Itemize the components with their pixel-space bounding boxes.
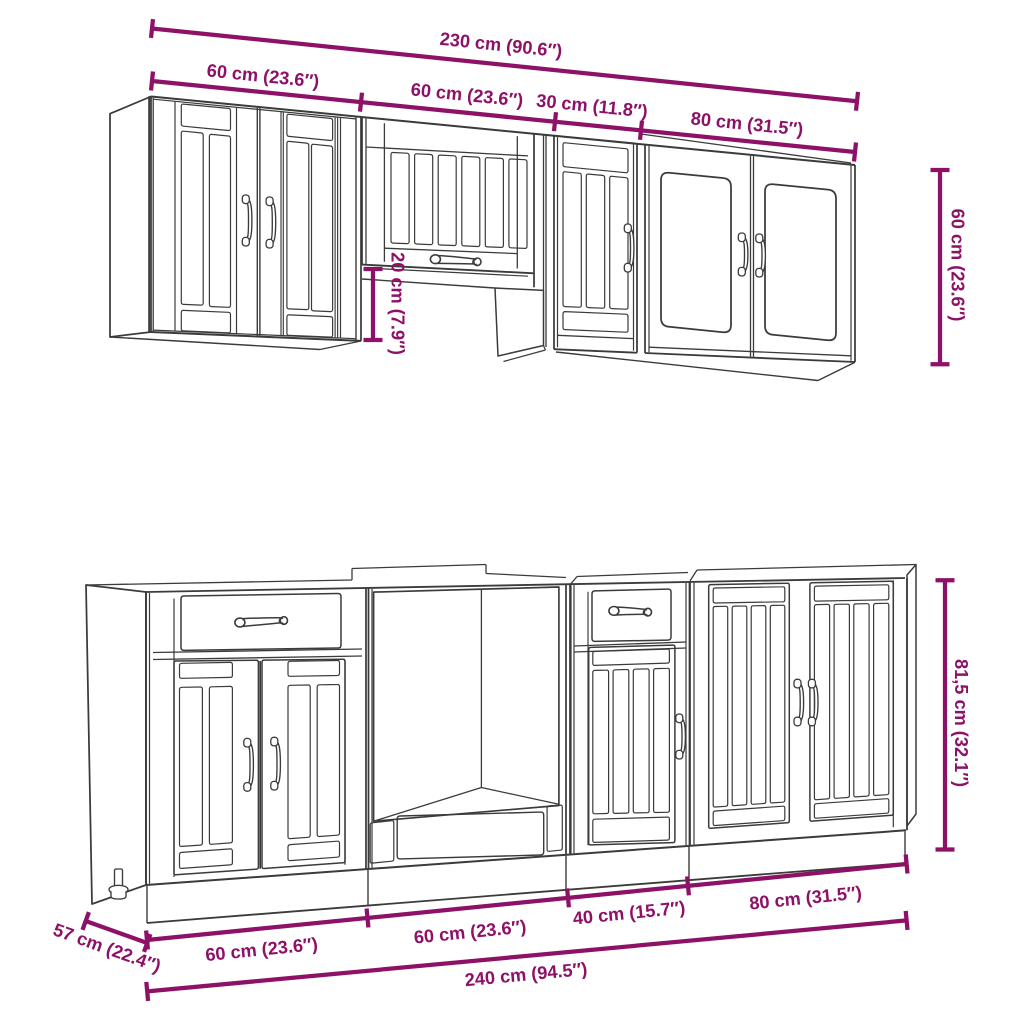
- svg-text:20 cm (7.9″): 20 cm (7.9″): [388, 252, 408, 355]
- svg-text:60 cm (23.6″): 60 cm (23.6″): [948, 209, 968, 322]
- svg-text:81,5 cm (32.1″): 81,5 cm (32.1″): [951, 659, 971, 787]
